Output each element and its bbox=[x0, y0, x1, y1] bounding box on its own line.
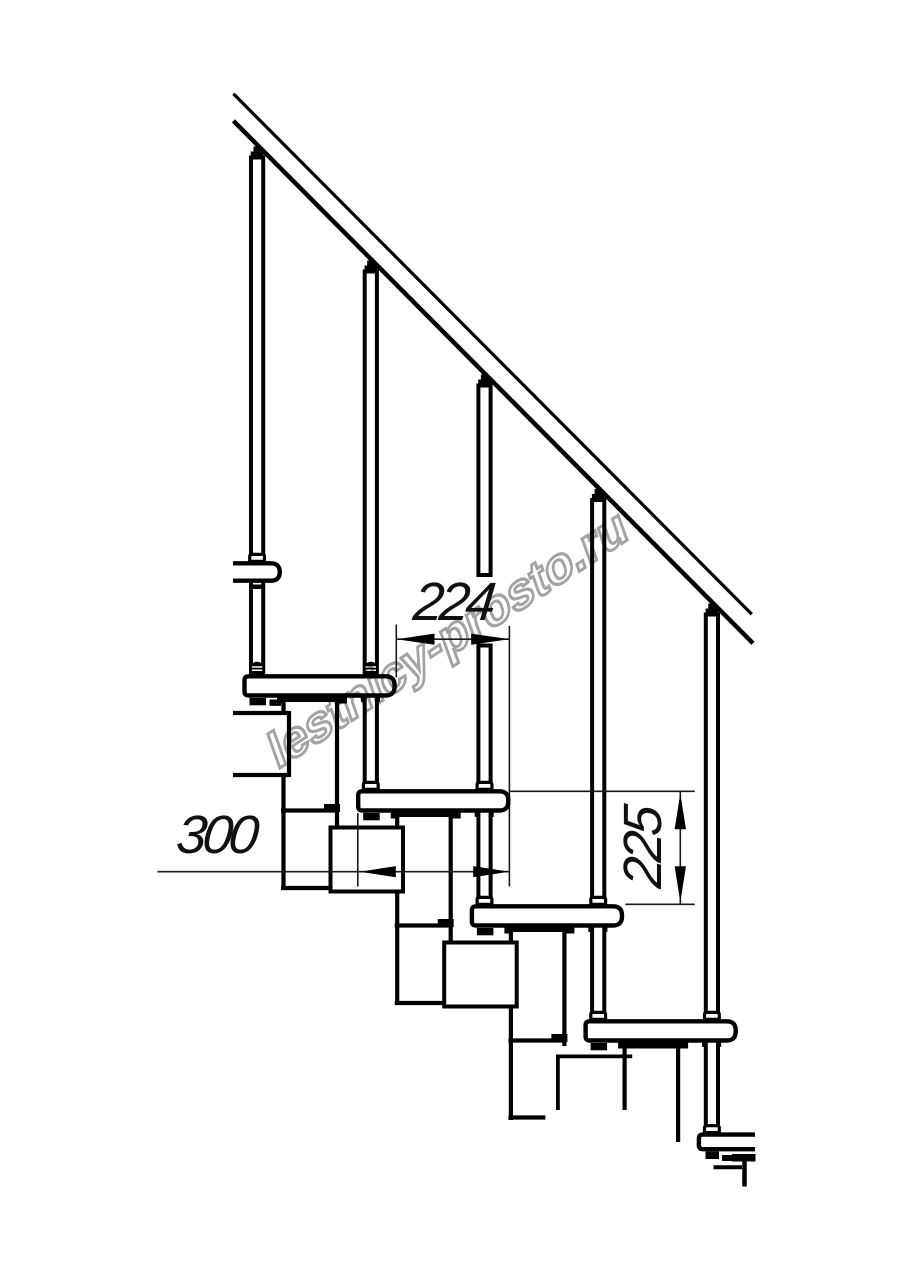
svg-text:224: 224 bbox=[410, 572, 498, 632]
svg-text:300: 300 bbox=[174, 805, 262, 865]
svg-text:225: 225 bbox=[613, 801, 673, 891]
